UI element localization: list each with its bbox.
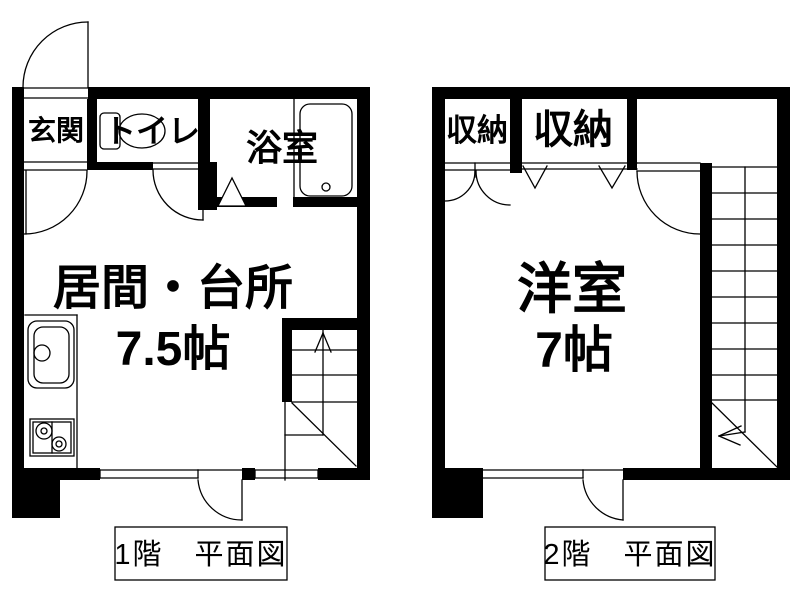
floor2-caption-box: 2階 平面図	[543, 527, 716, 580]
bath-label: 浴室	[246, 127, 318, 168]
western-room-size-label: 7帖	[535, 322, 613, 378]
genkan-step	[24, 162, 87, 170]
entry-door	[23, 22, 88, 98]
floor2-plan: 収納 収納 洋室 7帖 2階 平面図	[432, 87, 790, 580]
staircase-1f	[285, 330, 357, 480]
floor1-plan: 玄関 トイレ 浴室 居間・台所 7.5帖 1階 平面図	[12, 22, 370, 580]
floorplan-canvas: 玄関 トイレ 浴室 居間・台所 7.5帖 1階 平面図	[0, 0, 800, 600]
toilet-door	[153, 163, 203, 220]
window-2f	[483, 470, 583, 478]
room-door-2f	[637, 163, 700, 234]
floor1-caption: 1階 平面図	[114, 539, 287, 571]
exterior-door-2f	[583, 470, 623, 520]
floor2-caption: 2階 平面図	[543, 539, 716, 571]
closet-left-label: 収納	[446, 113, 508, 148]
closet-right-folding-doors	[522, 163, 637, 188]
exterior-door-1f	[198, 470, 242, 520]
closet-left-doors	[445, 163, 510, 205]
bathtub-drain	[322, 183, 330, 191]
floor1-caption-box: 1階 平面図	[114, 527, 287, 580]
western-room-label: 洋室	[517, 258, 627, 320]
window-1f-right	[255, 470, 318, 478]
staircase-2f	[712, 167, 777, 467]
genkan-living-door	[24, 171, 87, 234]
window-1f-left	[100, 470, 198, 478]
living-kitchen-label: 居間・台所	[53, 262, 293, 315]
living-kitchen-size-label: 7.5帖	[116, 323, 231, 376]
bath-folding-door	[218, 178, 246, 206]
kitchen-sink	[28, 321, 74, 388]
stair-up-arrow	[315, 333, 323, 352]
closet-right-label: 収納	[533, 108, 613, 152]
toilet-label: トイレ	[104, 113, 200, 149]
kitchen-stove	[30, 419, 74, 456]
genkan-label: 玄関	[28, 114, 84, 146]
